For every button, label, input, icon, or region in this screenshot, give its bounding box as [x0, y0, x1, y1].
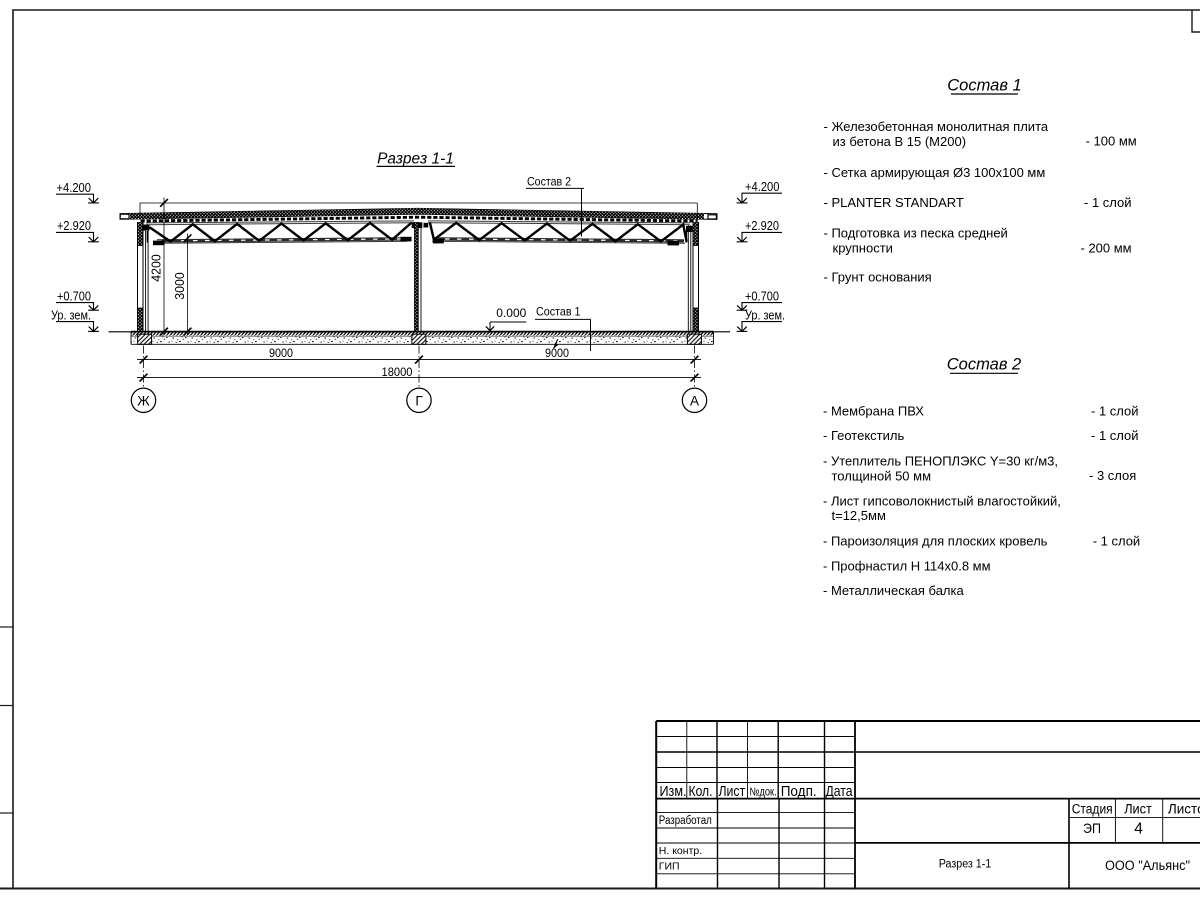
- svg-text:- Мембрана ПВХ: - Мембрана ПВХ: [823, 403, 924, 418]
- svg-text:t=12,5мм: t=12,5мм: [832, 508, 886, 523]
- svg-text:Ур. зем.: Ур. зем.: [745, 308, 785, 322]
- svg-text:4200: 4200: [150, 254, 164, 282]
- svg-text:+4.200: +4.200: [745, 180, 780, 194]
- svg-text:Изм.: Изм.: [660, 784, 687, 800]
- svg-text:Состав 1: Состав 1: [536, 304, 581, 318]
- svg-text:№док.: №док.: [750, 786, 777, 798]
- svg-text:- Лист гипсоволокнистый влагос: - Лист гипсоволокнистый влагостойкий,: [823, 493, 1061, 508]
- svg-text:Состав 2: Состав 2: [527, 175, 571, 189]
- svg-text:- 1 слой: - 1 слой: [1093, 533, 1141, 548]
- svg-text:- 1 слой: - 1 слой: [1091, 428, 1139, 443]
- svg-text:- Профнастил Н 114х0.8 мм: - Профнастил Н 114х0.8 мм: [823, 558, 991, 573]
- svg-text:+4.200: +4.200: [57, 181, 92, 195]
- svg-text:Н. контр.: Н. контр.: [659, 845, 702, 857]
- svg-text:- Железобетонная монолитная п: - Железобетонная монолитная плита: [824, 119, 1049, 134]
- svg-text:- Грунт основания: - Грунт основания: [824, 270, 932, 285]
- svg-text:- 3 слоя: - 3 слоя: [1089, 468, 1136, 483]
- svg-text:9000: 9000: [545, 346, 569, 360]
- svg-text:Лист: Лист: [719, 784, 746, 800]
- svg-text:3000: 3000: [173, 272, 187, 300]
- svg-text:4: 4: [1134, 821, 1143, 838]
- svg-text:Листов: Листов: [1168, 802, 1200, 817]
- svg-text:- 100 мм: - 100 мм: [1086, 133, 1137, 148]
- svg-text:- 1 слой: - 1 слой: [1084, 195, 1132, 210]
- svg-text:ГИП: ГИП: [659, 861, 680, 873]
- svg-text:- Пароизоляция для плоских кро: - Пароизоляция для плоских кровель: [823, 533, 1048, 548]
- svg-text:из бетона В 15 (М200): из бетона В 15 (М200): [833, 134, 967, 149]
- svg-text:- Подготовка из песка средней: - Подготовка из песка средней: [824, 226, 1008, 241]
- svg-text:Дата: Дата: [826, 784, 854, 800]
- svg-text:9000: 9000: [269, 346, 293, 360]
- svg-text:толщиной 50 мм: толщиной 50 мм: [832, 468, 932, 483]
- svg-text:Стадия: Стадия: [1072, 802, 1113, 817]
- svg-text:- Геотекстиль: - Геотекстиль: [823, 428, 904, 443]
- svg-text:- 200 мм: - 200 мм: [1081, 241, 1132, 256]
- svg-text:Ур. зем.: Ур. зем.: [51, 308, 91, 322]
- svg-text:0.000: 0.000: [496, 306, 526, 320]
- svg-text:Подп.: Подп.: [781, 784, 817, 800]
- svg-text:18000: 18000: [382, 365, 413, 379]
- svg-text:Кол.: Кол.: [689, 784, 713, 800]
- svg-text:А: А: [690, 393, 699, 408]
- svg-text:- PLANTER STANDART: - PLANTER STANDART: [824, 195, 964, 210]
- svg-text:- Сетка армирующая Ø3 100х100: - Сетка армирующая Ø3 100х100 мм: [824, 165, 1046, 180]
- svg-text:- Металлическая балка: - Металлическая балка: [823, 583, 964, 598]
- svg-text:Г: Г: [415, 393, 423, 408]
- svg-text:ООО "Альянс": ООО "Альянс": [1105, 858, 1190, 873]
- svg-text:- 1 слой: - 1 слой: [1091, 403, 1139, 418]
- svg-text:- Утеплитель ПЕНОПЛЭКС Y=30 кг: - Утеплитель ПЕНОПЛЭКС Y=30 кг/м3,: [823, 453, 1058, 468]
- svg-text:+2.920: +2.920: [745, 219, 779, 233]
- svg-text:Лист: Лист: [1124, 801, 1152, 816]
- svg-text:Состав 1: Состав 1: [947, 77, 1021, 95]
- svg-text:Разрез 1-1: Разрез 1-1: [939, 859, 992, 871]
- svg-text:ЭП: ЭП: [1083, 820, 1101, 836]
- svg-text:крупности: крупности: [833, 241, 893, 256]
- svg-text:Ж: Ж: [137, 393, 150, 408]
- svg-text:Разработал: Разработал: [659, 815, 712, 827]
- svg-text:+2.920: +2.920: [57, 219, 91, 233]
- svg-text:+0.700: +0.700: [57, 289, 91, 303]
- svg-text:+0.700: +0.700: [745, 289, 779, 303]
- svg-text:Состав 2: Состав 2: [947, 356, 1021, 374]
- svg-text:Разрез 1-1: Разрез 1-1: [377, 150, 454, 167]
